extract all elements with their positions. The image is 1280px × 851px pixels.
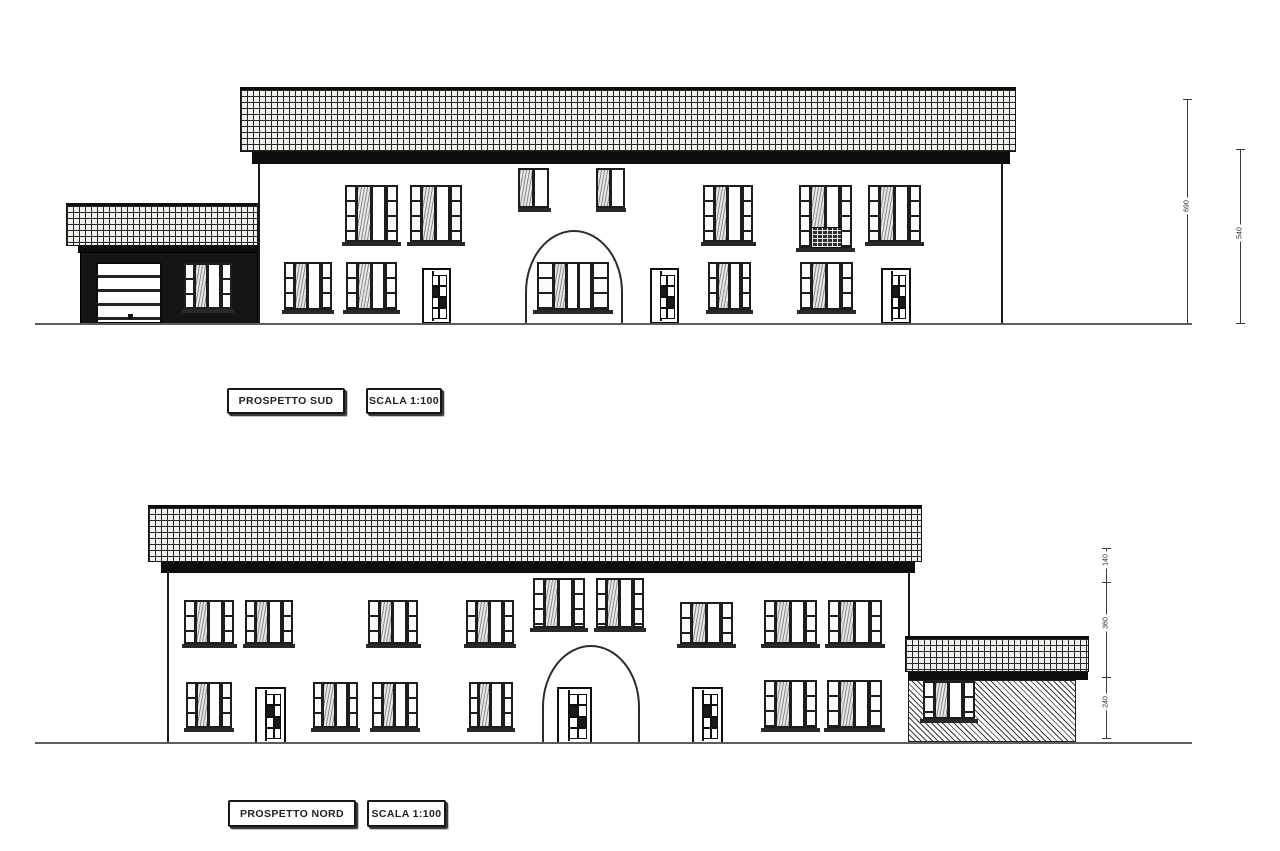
dimension-label: 140	[1103, 552, 1111, 569]
window-sill	[824, 728, 885, 732]
shutter-panel	[386, 185, 398, 242]
window-sill	[518, 208, 551, 212]
window-sill	[761, 728, 819, 732]
caption-scala-sud: SCALA 1:100	[366, 388, 442, 414]
glazing-leaf	[610, 168, 625, 208]
shuttered-window	[828, 600, 882, 644]
shuttered-window	[923, 681, 975, 719]
shuttered-window	[313, 682, 358, 728]
window-sill	[342, 242, 400, 246]
glazing-leaf-shaded	[518, 168, 534, 208]
window-sill	[243, 644, 296, 648]
dimension-tick	[1236, 149, 1245, 150]
door-panel	[440, 298, 445, 307]
glazing-leaf	[558, 578, 573, 628]
glazing-leaf	[268, 600, 282, 644]
shutter-panel	[321, 262, 332, 310]
door-panel	[661, 309, 666, 318]
door-panel	[267, 706, 273, 715]
glazing-leaf	[790, 600, 805, 644]
glazing-leaf-shaded	[357, 262, 372, 310]
window-sill	[596, 208, 627, 212]
shuttered-window	[703, 185, 753, 242]
glazing-leaf-shaded	[775, 680, 790, 728]
dimension-label: 690	[1184, 198, 1192, 215]
glazing-leaf-shaded	[839, 600, 855, 644]
door-panel	[900, 298, 905, 307]
glazing-leaf	[727, 185, 742, 242]
shuttered-window	[368, 600, 418, 644]
glazing-leaf	[790, 680, 805, 728]
glazing-leaf	[533, 168, 549, 208]
door-panel	[900, 287, 905, 296]
door-panel	[704, 706, 710, 715]
shutter-panel	[223, 600, 235, 644]
shuttered-window	[800, 262, 853, 310]
wide-shuttered-window	[537, 262, 609, 310]
window-sill	[182, 644, 237, 648]
shutter-panel	[805, 680, 817, 728]
window-sill	[282, 310, 335, 314]
south-elevation-annex-roof	[66, 203, 258, 246]
glazing-leaf-shaded	[839, 680, 855, 728]
door-panel	[704, 718, 710, 727]
south-elevation-main-roof	[240, 87, 1016, 152]
window-sill	[920, 719, 977, 723]
glazing-leaf	[371, 185, 386, 242]
window-sill	[530, 628, 587, 632]
shutter-panel	[633, 578, 644, 628]
door-panel	[900, 276, 905, 285]
shuttered-window	[284, 262, 332, 310]
narrow-window	[597, 168, 625, 208]
shutter-panel	[282, 600, 293, 644]
window-sill	[796, 248, 854, 252]
drawing-sheet: 690540140360240 PROSPETTO SUD SCALA 1:10…	[0, 0, 1280, 851]
shutter-panel	[221, 263, 232, 309]
door-panel	[267, 718, 273, 727]
shuttered-window	[764, 600, 817, 644]
shutter-panel	[385, 262, 397, 310]
shutter-panel	[573, 578, 585, 628]
north-elevation-annex-eaves	[908, 672, 1088, 680]
door-panels	[703, 694, 718, 740]
door-panel	[712, 718, 718, 727]
shuttered-window	[372, 682, 418, 728]
window-sill	[464, 644, 517, 648]
shutter-panel	[909, 185, 921, 242]
shuttered-window	[410, 185, 462, 242]
dimension-tick	[1183, 99, 1192, 100]
dimension-tick	[1102, 738, 1111, 739]
shutter-panel	[841, 262, 853, 310]
dimension-tick	[1236, 323, 1245, 324]
door-panel	[668, 298, 673, 307]
glazing-leaf	[392, 600, 407, 644]
south-elevation-dimension-line: 540	[1240, 149, 1241, 323]
glazing-leaf-shaded	[775, 600, 790, 644]
door-panel	[275, 729, 281, 738]
balcony-door	[799, 185, 852, 248]
entry-door	[650, 268, 679, 324]
caption-prospetto-nord: PROSPETTO NORD	[228, 800, 356, 827]
glazing-leaf	[578, 262, 592, 310]
door-panels	[266, 694, 281, 740]
caption-text: SCALA 1:100	[372, 808, 442, 820]
glazing-leaf	[854, 680, 870, 728]
window-sill	[797, 310, 855, 314]
glazing-leaf-shaded	[606, 578, 620, 628]
glazing-leaf	[566, 262, 580, 310]
door-panel	[704, 729, 710, 738]
door-panel	[440, 287, 445, 296]
window-sill	[701, 242, 756, 246]
window-sill	[467, 728, 515, 732]
window-sill	[825, 644, 884, 648]
door-panel	[661, 276, 666, 285]
door-panel	[433, 276, 438, 285]
entry-door	[881, 268, 911, 324]
south-elevation-ground-line	[35, 323, 1192, 325]
glazing-leaf-shaded	[553, 262, 567, 310]
shutter-panel	[503, 600, 514, 644]
window-sill	[182, 309, 235, 313]
glazing-leaf	[307, 262, 321, 310]
north-elevation-main-eaves	[161, 562, 915, 573]
shutter-panel	[869, 680, 882, 728]
caption-scala-nord: SCALA 1:100	[367, 800, 446, 827]
door-panel	[661, 287, 666, 296]
entry-door	[422, 268, 451, 324]
door-panel	[570, 695, 577, 704]
glazing-leaf	[619, 578, 633, 628]
door-panel	[570, 729, 577, 738]
north-elevation-ground-line	[35, 742, 1192, 744]
shuttered-window	[345, 185, 398, 242]
shutter-panel	[537, 262, 554, 310]
door-panel	[668, 287, 673, 296]
shuttered-window	[186, 682, 232, 728]
door-panel	[712, 695, 718, 704]
glazing-leaf	[706, 602, 721, 644]
glazing-leaf-shaded	[879, 185, 894, 242]
door-panels	[660, 275, 674, 320]
caption-prospetto-sud: PROSPETTO SUD	[227, 388, 345, 414]
glazing-leaf	[729, 262, 742, 310]
door-panel	[712, 706, 718, 715]
south-elevation-main-eaves	[252, 152, 1010, 164]
door-panel	[668, 309, 673, 318]
door-panel	[893, 298, 898, 307]
glazing-leaf-shaded	[544, 578, 559, 628]
door-panel	[704, 695, 710, 704]
shuttered-window	[708, 262, 751, 310]
dimension-tick	[1102, 677, 1111, 678]
window-sill	[311, 728, 361, 732]
window-sill	[184, 728, 235, 732]
north-elevation-annex-roof	[905, 636, 1089, 672]
window-sill	[706, 310, 753, 314]
shuttered-window	[533, 578, 585, 628]
shutter-panel	[592, 262, 609, 310]
garage-handle	[128, 314, 133, 319]
shutter-panel	[348, 682, 358, 728]
shutter-panel	[721, 602, 733, 644]
glazing-leaf-shaded	[379, 600, 394, 644]
glazing-leaf	[948, 681, 963, 719]
shuttered-window	[184, 600, 234, 644]
door-panels	[569, 694, 587, 740]
door-panel	[579, 695, 586, 704]
door-panel	[267, 729, 273, 738]
glazing-leaf-shaded	[934, 681, 949, 719]
door-panel	[267, 695, 273, 704]
glazing-leaf	[208, 682, 221, 728]
door-panel	[433, 298, 438, 307]
door-panel	[440, 276, 445, 285]
caption-text: SCALA 1:100	[369, 395, 439, 407]
glazing-leaf	[854, 600, 870, 644]
shuttered-window	[680, 602, 733, 644]
door-panel	[661, 298, 666, 307]
shutter-panel	[741, 262, 751, 310]
north-elevation-dimension-line: 140360240	[1106, 548, 1107, 738]
glazing-leaf-shaded	[811, 262, 826, 310]
shuttered-window	[184, 263, 232, 309]
window-sill	[343, 310, 399, 314]
shutter-panel	[450, 185, 462, 242]
shuttered-window	[466, 600, 514, 644]
glazing-leaf-shaded	[476, 600, 490, 644]
window-sill	[407, 242, 464, 246]
glazing-leaf	[894, 185, 909, 242]
shuttered-window	[596, 578, 644, 628]
door-panel	[570, 706, 577, 715]
door-panel	[579, 706, 586, 715]
glazing-leaf-shaded	[714, 185, 729, 242]
door-panel	[275, 706, 281, 715]
caption-text: PROSPETTO SUD	[239, 395, 334, 407]
door-panel	[893, 309, 898, 318]
window-sill	[677, 644, 735, 648]
dimension-tick	[1102, 548, 1111, 549]
entry-door	[692, 687, 723, 744]
shuttered-window	[245, 600, 293, 644]
north-elevation-main-roof	[148, 505, 922, 562]
door-panel	[712, 729, 718, 738]
shutter-panel	[503, 682, 513, 728]
glazing-leaf	[826, 262, 841, 310]
shuttered-window	[868, 185, 921, 242]
window-sill	[370, 728, 421, 732]
dimension-label: 240	[1103, 694, 1111, 711]
door-panel	[579, 718, 586, 727]
glazing-leaf-shaded	[194, 263, 208, 309]
window-sill	[533, 310, 612, 314]
shuttered-window	[469, 682, 513, 728]
shutter-panel	[963, 681, 975, 719]
glazing-leaf-shaded	[421, 185, 436, 242]
entry-door	[255, 687, 286, 744]
door-panel	[440, 309, 445, 318]
door-panel	[579, 729, 586, 738]
shuttered-window	[346, 262, 397, 310]
door-panel	[275, 695, 281, 704]
door-panel	[433, 287, 438, 296]
door-panel	[570, 718, 577, 727]
caption-text: PROSPETTO NORD	[240, 808, 344, 820]
window-sill	[865, 242, 923, 246]
glazing-leaf-shaded	[382, 682, 395, 728]
garage-door	[96, 262, 162, 324]
door-panel	[275, 718, 281, 727]
south-elevation-dimension-line: 690	[1187, 99, 1188, 323]
window-sill	[594, 628, 647, 632]
door-panel	[893, 287, 898, 296]
shutter-panel	[805, 600, 817, 644]
glazing-leaf	[371, 262, 386, 310]
glazing-leaf	[394, 682, 407, 728]
glazing-leaf-shaded	[294, 262, 308, 310]
shuttered-window	[827, 680, 882, 728]
shutter-panel	[742, 185, 754, 242]
glazing-leaf	[208, 600, 223, 644]
glazing-leaf	[207, 263, 221, 309]
glazing-leaf	[489, 600, 503, 644]
glazing-leaf-shaded	[596, 168, 611, 208]
glazing-leaf-shaded	[691, 602, 706, 644]
glazing-leaf	[335, 682, 348, 728]
door-panel	[433, 309, 438, 318]
shutter-panel	[221, 682, 232, 728]
door-panel	[668, 276, 673, 285]
dimension-tick	[1102, 582, 1111, 583]
narrow-window	[519, 168, 549, 208]
glazing-leaf-shaded	[255, 600, 269, 644]
door-panels	[892, 275, 907, 320]
glazing-leaf	[490, 682, 503, 728]
glazing-leaf-shaded	[356, 185, 371, 242]
balcony-railing	[811, 227, 842, 248]
entry-door	[557, 687, 592, 744]
shutter-panel	[407, 600, 419, 644]
door-panel	[893, 276, 898, 285]
glazing-leaf	[435, 185, 450, 242]
window-sill	[366, 644, 421, 648]
shutter-panel	[407, 682, 418, 728]
window-sill	[761, 644, 819, 648]
dimension-label: 540	[1237, 225, 1245, 242]
glazing-leaf-shaded	[196, 682, 209, 728]
shuttered-window	[764, 680, 817, 728]
glazing-leaf-shaded	[195, 600, 210, 644]
dimension-label: 360	[1103, 615, 1111, 632]
shutter-panel	[870, 600, 882, 644]
door-panels	[432, 275, 446, 320]
door-panel	[900, 309, 905, 318]
